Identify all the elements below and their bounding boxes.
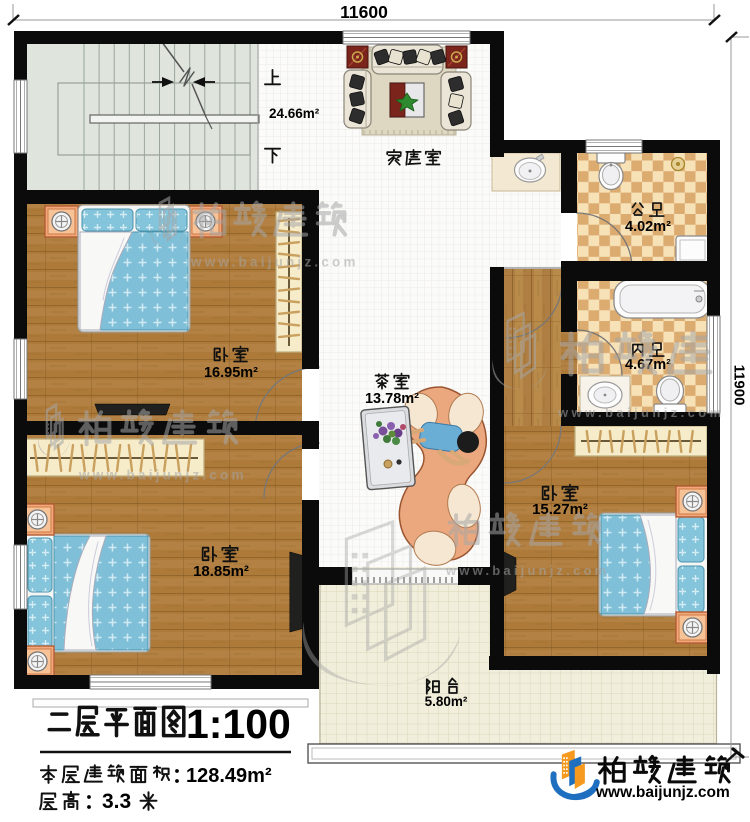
svg-text:16.95m²: 16.95m² <box>204 365 258 381</box>
svg-text:11900: 11900 <box>731 365 748 406</box>
svg-text:18.85m²: 18.85m² <box>193 563 249 580</box>
svg-text:www.baijunjz.com: www.baijunjz.com <box>595 784 730 801</box>
svg-text:www.baijunjz.com: www.baijunjz.com <box>190 255 359 270</box>
svg-text:5.80m²: 5.80m² <box>425 694 468 709</box>
svg-text:www.baijunjz.com: www.baijunjz.com <box>445 563 609 578</box>
svg-text:13.78m²: 13.78m² <box>365 391 419 407</box>
svg-text:24.66m²: 24.66m² <box>269 106 320 121</box>
svg-text:www.baijunjz.com: www.baijunjz.com <box>78 468 247 483</box>
svg-text:：: ： <box>84 791 104 813</box>
svg-text:11600: 11600 <box>340 2 388 22</box>
svg-text:128.49m²: 128.49m² <box>186 765 272 787</box>
svg-text:www.baijunjz.com: www.baijunjz.com <box>557 405 725 420</box>
svg-text:3.3: 3.3 <box>102 790 131 813</box>
svg-text:4.02m²: 4.02m² <box>625 219 671 235</box>
svg-text:1:100: 1:100 <box>186 701 291 747</box>
